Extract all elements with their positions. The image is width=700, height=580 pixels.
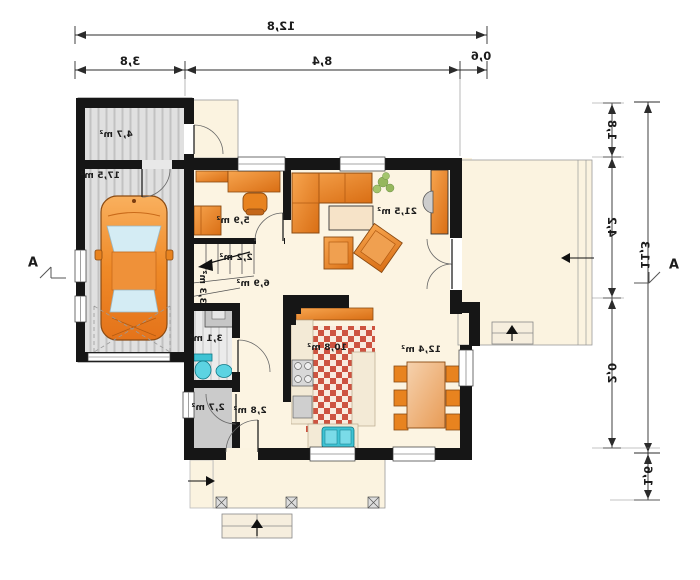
room-label-dining: 12,4 m² (401, 345, 441, 355)
dim-right-total: 11,3 (638, 241, 652, 269)
office-desk (228, 171, 280, 192)
chair (394, 414, 408, 430)
porch-doorway (184, 124, 194, 154)
sink (216, 365, 232, 378)
entry-porch (213, 458, 385, 508)
floor-plan-drawing (0, 0, 700, 580)
kitchen-tiles-2 (306, 368, 356, 432)
front-doorway (226, 448, 258, 460)
room-label-stairs: 2,2 m² (219, 253, 253, 263)
room-label-corridor: 3,3 m² (197, 270, 207, 304)
room-label-hall: 6,9 m² (236, 279, 270, 289)
section-letter-right: A (669, 258, 679, 273)
office-doorway (256, 238, 284, 244)
chair (394, 390, 408, 406)
dim-seg-garage: 3,8 (120, 54, 140, 68)
dim-seg-house: 8,4 (312, 54, 332, 68)
room-label-office: 5,9 m² (216, 216, 250, 226)
car (95, 196, 173, 340)
dim-right-3: 2,0 (605, 363, 619, 383)
room-label-storage: 4,7 m² (99, 130, 133, 140)
office-shelf (196, 171, 228, 182)
dining-table (407, 362, 445, 428)
room-label-kitchen: 10,8 m² (307, 343, 347, 353)
room-label-pantry: 2,7 m² (191, 403, 225, 413)
dim-right-bottom: 1,6 (641, 466, 655, 486)
room-label-garage: 17,5 m² (80, 171, 120, 181)
chair (394, 366, 408, 382)
toilet-tank (194, 354, 212, 361)
pantry-floor (192, 388, 232, 448)
section-mark-left (40, 267, 66, 278)
coffee-table (329, 206, 373, 230)
car-windshield (107, 226, 161, 252)
storage-garage-doorway (142, 160, 172, 169)
room-label-living: 21,5 m² (377, 207, 417, 217)
dining-furniture (394, 362, 460, 430)
oven (293, 396, 312, 418)
dim-right-1: 1,8 (605, 120, 619, 140)
kitchen-counter-top (296, 308, 373, 320)
room-label-bathroom: 3,1 m² (189, 334, 223, 344)
chair (446, 390, 460, 406)
section-letter-left: A (28, 256, 38, 271)
fireplace (431, 170, 448, 234)
top-porch (192, 100, 238, 158)
section-mark-right (634, 272, 660, 283)
dim-total-width: 12,8 (267, 19, 295, 33)
chair (446, 414, 460, 430)
dim-right-2: 4,2 (605, 217, 619, 237)
dim-seg-right: 0,6 (471, 49, 491, 63)
floor-plan: 12,8 3,8 8,4 0,6 1,8 4,2 2,0 11,3 1,6 A … (0, 0, 700, 580)
bath-doorway (232, 338, 240, 372)
toilet (195, 361, 211, 379)
chair (446, 366, 460, 382)
kitchen-island (352, 352, 375, 426)
car-rear-window (110, 290, 158, 312)
kitchen-doorway (283, 402, 291, 448)
room-label-entry: 2,8 m² (233, 406, 267, 416)
